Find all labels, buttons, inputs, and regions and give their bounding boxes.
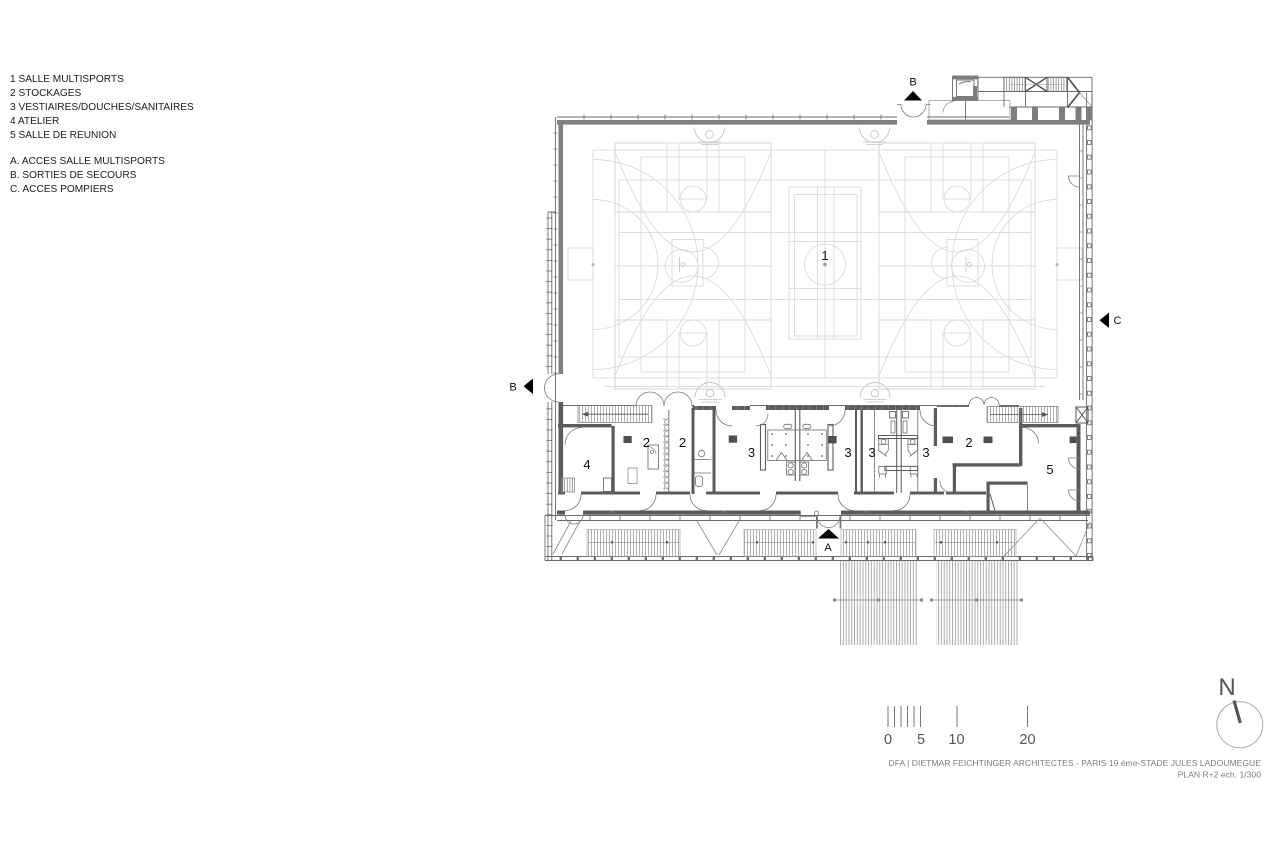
svg-text:20: 20: [1019, 732, 1035, 748]
svg-text:1: 1: [821, 248, 828, 263]
svg-text:3 VESTIAIRES/DOUCHES/SANITAIRE: 3 VESTIAIRES/DOUCHES/SANITAIRES: [10, 102, 194, 113]
svg-text:B. SORTIES DE SECOURS: B. SORTIES DE SECOURS: [10, 170, 137, 181]
svg-text:5 SALLE DE REUNION: 5 SALLE DE REUNION: [10, 130, 116, 141]
svg-text:1 SALLE MULTISPORTS: 1 SALLE MULTISPORTS: [10, 74, 124, 85]
svg-text:3: 3: [748, 445, 755, 460]
svg-text:2: 2: [679, 435, 686, 450]
svg-text:4 ATELIER: 4 ATELIER: [10, 116, 59, 127]
svg-text:5: 5: [917, 732, 925, 748]
svg-text:3: 3: [844, 445, 851, 460]
svg-text:A: A: [824, 542, 832, 554]
svg-text:5: 5: [1046, 462, 1053, 477]
svg-text:2: 2: [965, 435, 972, 450]
svg-text:A. ACCES SALLE MULTISPORTS: A. ACCES SALLE MULTISPORTS: [10, 156, 165, 167]
svg-text:C. ACCES POMPIERS: C. ACCES POMPIERS: [10, 184, 114, 195]
svg-text:C: C: [1114, 315, 1122, 327]
svg-text:10: 10: [948, 732, 964, 748]
svg-text:3: 3: [922, 445, 929, 460]
svg-text:2: 2: [643, 435, 650, 450]
svg-text:B: B: [909, 77, 916, 89]
svg-text:B: B: [509, 382, 516, 394]
svg-text:4: 4: [583, 457, 590, 472]
svg-text:N: N: [1218, 674, 1235, 701]
svg-text:PLAN R+2 ech. 1/300: PLAN R+2 ech. 1/300: [1178, 770, 1262, 780]
svg-text:DFA | DIETMAR FEICHTINGER ARCH: DFA | DIETMAR FEICHTINGER ARCHITECTES - …: [889, 758, 1262, 768]
svg-text:0: 0: [884, 732, 892, 748]
svg-text:2 STOCKAGES: 2 STOCKAGES: [10, 88, 82, 99]
svg-text:3: 3: [868, 445, 875, 460]
